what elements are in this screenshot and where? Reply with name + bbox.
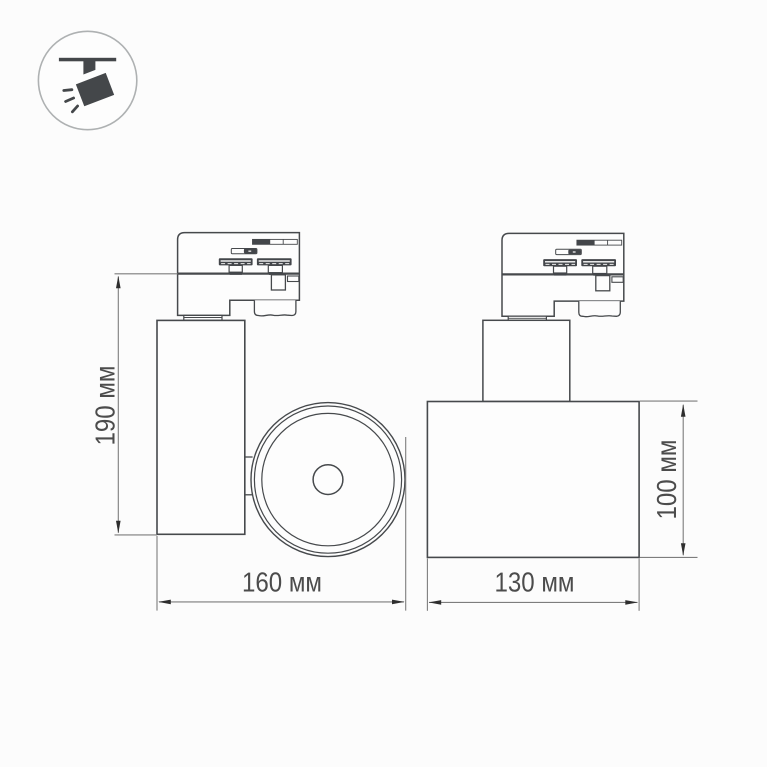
svg-text:190 мм: 190 мм	[90, 366, 121, 446]
svg-text:100 мм: 100 мм	[651, 440, 682, 520]
svg-text:160 мм: 160 мм	[242, 566, 322, 597]
svg-text:130 мм: 130 мм	[495, 567, 575, 598]
